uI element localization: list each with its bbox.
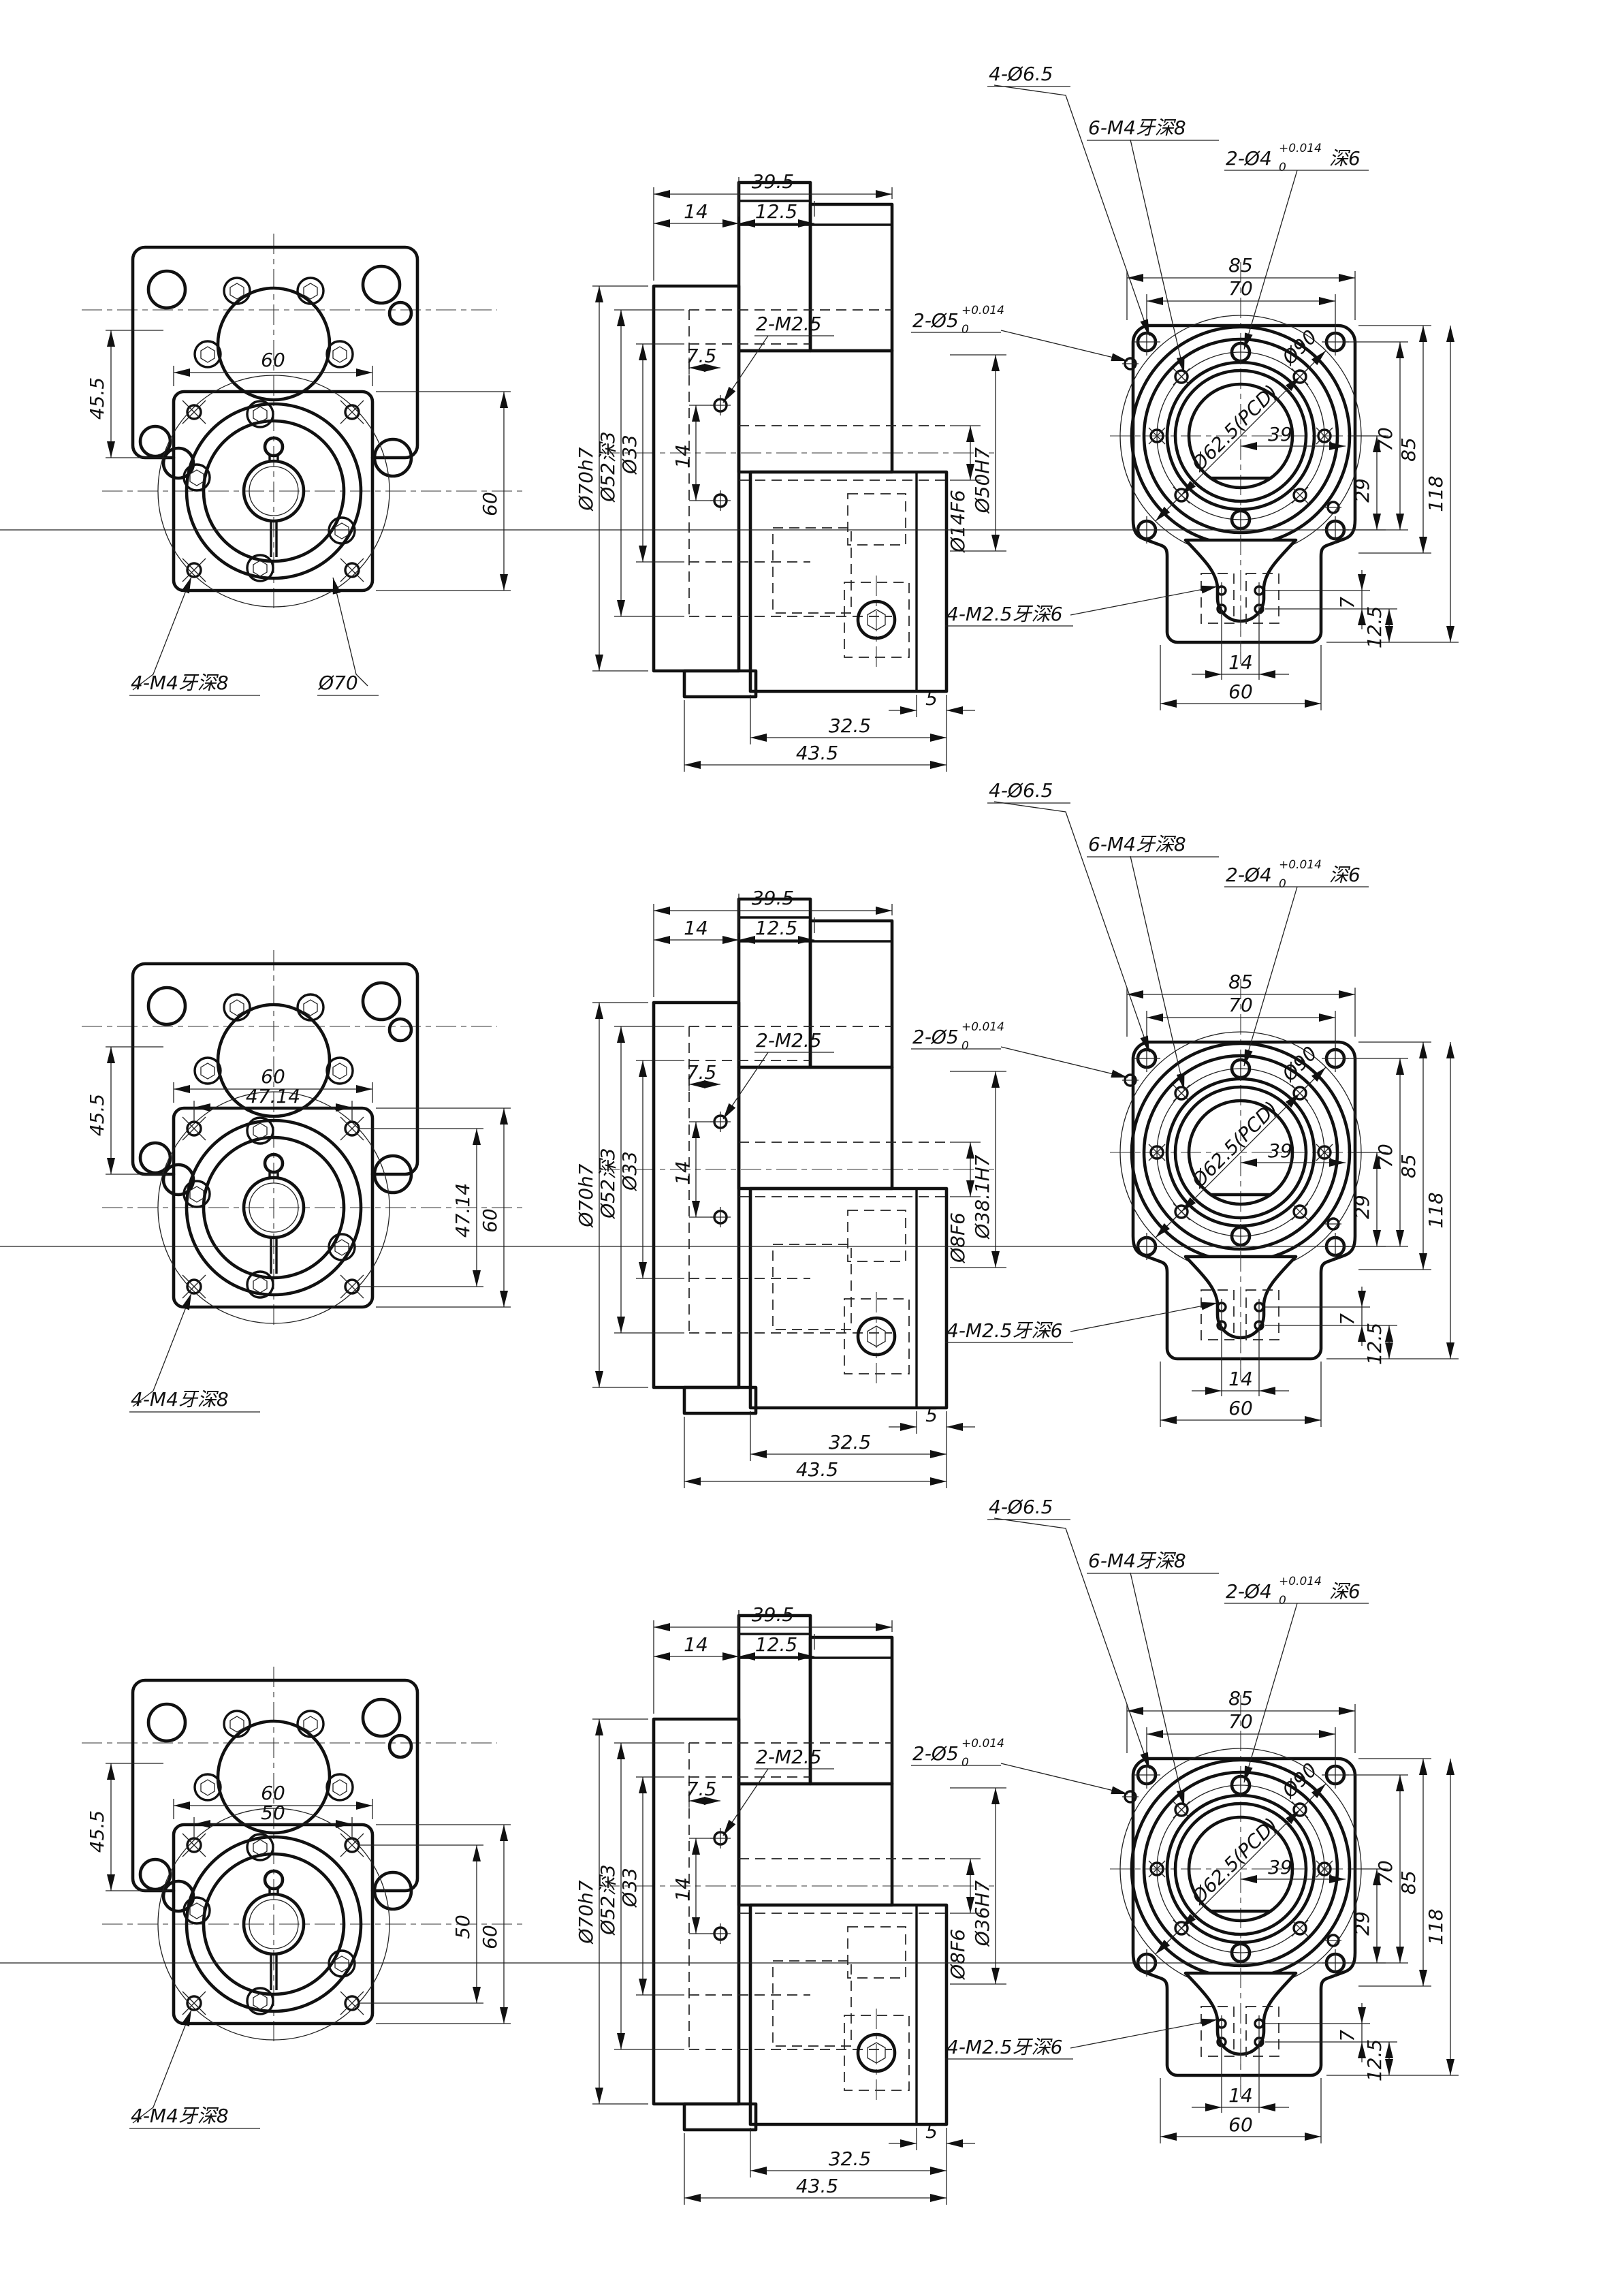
leader-label: 4-Ø6.5 — [989, 63, 1053, 85]
dim-label: Ø52深3 — [597, 1864, 619, 1935]
dim-label: 7 — [1336, 1313, 1358, 1325]
tolerance-lower: 0 — [961, 323, 969, 336]
dim-label: 12.5 — [1363, 606, 1386, 648]
dim-label: 12.5 — [755, 917, 797, 939]
tolerance-upper: +0.014 — [1279, 1575, 1322, 1588]
drawing-row: 60 47.14 45.5 47.14 60 4-M4牙深8 — [0, 774, 1622, 1496]
dim-label: 12.5 — [1363, 1323, 1386, 1365]
tolerance-upper: +0.014 — [961, 1020, 1004, 1034]
dim-label: 29 — [1351, 1911, 1373, 1936]
dim-label: 14 — [1228, 651, 1253, 674]
dim-label: 118 — [1425, 1908, 1447, 1945]
dim-label: 14 — [1228, 2084, 1253, 2107]
dim-label: 7.5 — [686, 1061, 717, 1084]
dim-label: 60 — [261, 349, 285, 371]
dim-label: 32.5 — [829, 714, 871, 737]
tolerance-lower: 0 — [961, 1039, 969, 1053]
front-view: 60 50 45.5 50 60 4-M4牙深8 — [82, 1667, 524, 2128]
dim-label: 7.5 — [686, 1778, 717, 1800]
dim-label: 7 — [1336, 597, 1358, 609]
dim-label: 70 — [1374, 427, 1397, 452]
front-view-dimensions: 60 50 45.5 50 60 4-M4牙深8 — [86, 1763, 511, 2128]
dim-label: 29 — [1351, 478, 1373, 503]
dim-label: 14 — [1228, 1368, 1253, 1390]
dim-label: 39 — [1268, 1856, 1292, 1878]
dim-label: Ø50H7 — [971, 447, 993, 514]
dim-label: Ø90 — [1277, 326, 1322, 370]
leader-suffix: 深6 — [1329, 864, 1361, 886]
tolerance-lower: 0 — [1279, 877, 1286, 891]
leader-label: 4-M4牙深8 — [131, 2105, 229, 2127]
drawing-row: 60 45.5 60 4-M4牙深8 Ø70 — [0, 58, 1622, 780]
dim-label: 85 — [1397, 1154, 1420, 1178]
leader-label: 4-M2.5牙深6 — [947, 2036, 1062, 2058]
leader-label: 2-Ø4 — [1226, 147, 1272, 170]
leader-label: 4-M4牙深8 — [131, 672, 229, 694]
side-view-geometry — [599, 183, 994, 697]
dim-label: 118 — [1425, 475, 1447, 512]
dim-label: 70 — [1228, 277, 1253, 300]
back-view: 85 70 4-Ø6.5 6-M4牙深8 2-Ø4 +0.014 0 深6 2-… — [0, 63, 1459, 710]
leader-label: 2-M2.5 — [756, 1746, 822, 1768]
dim-label: 43.5 — [796, 1458, 838, 1481]
dim-label: 39 — [1268, 1139, 1292, 1162]
leader-label: 2-Ø4 — [1226, 864, 1272, 886]
dim-label: 118 — [1425, 1192, 1447, 1228]
dim-label: 14 — [671, 444, 694, 469]
tolerance-upper: +0.014 — [1279, 142, 1322, 155]
dim-label: 5 — [925, 2120, 938, 2143]
tolerance-upper: +0.014 — [961, 304, 1004, 317]
dim-label: Ø90 — [1277, 1042, 1322, 1086]
leader-label: 2-Ø5 — [912, 309, 959, 332]
back-view: 85 70 4-Ø6.5 6-M4牙深8 2-Ø4 +0.014 0 深6 2-… — [0, 1496, 1459, 2143]
dim-label: Ø33 — [618, 435, 641, 475]
dim-label: 45.5 — [86, 1094, 108, 1136]
dim-label: 39.5 — [752, 170, 794, 193]
dim-label: 50 — [451, 1915, 474, 1939]
dim-label: 45.5 — [86, 377, 108, 420]
dim-label: 85 — [1397, 1870, 1420, 1895]
dim-label: 5 — [925, 1404, 938, 1426]
dim-label: 85 — [1228, 1687, 1253, 1710]
leader-label: 4-M2.5牙深6 — [947, 1319, 1062, 1342]
dim-label: 14 — [684, 1633, 708, 1656]
leader-label: 4-Ø6.5 — [989, 779, 1053, 802]
leader-label: 2-Ø4 — [1226, 1580, 1272, 1603]
dim-label: Ø14F6 — [947, 490, 969, 553]
dim-label: 43.5 — [796, 2175, 838, 2197]
leader-label: 6-M4牙深8 — [1088, 1550, 1186, 1572]
dim-label: 12.5 — [755, 1633, 797, 1656]
side-view-geometry — [599, 1616, 994, 2130]
dim-label: Ø52深3 — [597, 431, 619, 502]
dim-label: 60 — [479, 1925, 501, 1949]
dim-label: 32.5 — [829, 2148, 871, 2170]
dim-label: 39.5 — [752, 887, 794, 909]
dim-label: 7.5 — [686, 345, 717, 367]
dim-label: Ø36H7 — [971, 1881, 993, 1947]
tolerance-lower: 0 — [1279, 161, 1286, 174]
dim-label: Ø33 — [618, 1868, 641, 1908]
leader-label: Ø70 — [318, 672, 358, 694]
front-view-dimensions: 60 47.14 45.5 47.14 60 4-M4牙深8 — [86, 1047, 511, 1412]
dim-label: 60 — [479, 492, 501, 516]
dim-label: Ø90 — [1277, 1759, 1322, 1803]
leader-label: 6-M4牙深8 — [1088, 833, 1186, 855]
dim-label: 85 — [1228, 971, 1253, 993]
back-view: 85 70 4-Ø6.5 6-M4牙深8 2-Ø4 +0.014 0 深6 2-… — [0, 779, 1459, 1427]
dim-label: 45.5 — [86, 1810, 108, 1853]
tolerance-upper: +0.014 — [1279, 858, 1322, 872]
dim-label: 70 — [1374, 1860, 1397, 1885]
dim-label: Ø8F6 — [947, 1212, 969, 1263]
dim-label: 32.5 — [829, 1431, 871, 1453]
dim-label: Ø70h7 — [575, 447, 597, 511]
dim-label: 70 — [1228, 994, 1253, 1016]
leader-suffix: 深6 — [1329, 147, 1361, 170]
dim-label: 60 — [479, 1208, 501, 1233]
dim-label: 39 — [1268, 423, 1292, 445]
front-view-geometry — [82, 234, 524, 613]
tolerance-lower: 0 — [961, 1756, 969, 1770]
side-view: 39.5 14 12.5 Ø70h7 Ø52深3 Ø33 14 7.5 — [575, 887, 1006, 1488]
dim-label: 47.14 — [246, 1085, 300, 1107]
dim-label: 14 — [671, 1877, 694, 1902]
dim-label: 70 — [1374, 1144, 1397, 1168]
dim-label: Ø38.1H7 — [971, 1154, 993, 1239]
leader-label: 6-M4牙深8 — [1088, 116, 1186, 139]
side-view: 39.5 14 12.5 Ø70h7 Ø52深3 Ø33 14 7.5 — [575, 1603, 1006, 2205]
leader-suffix: 深6 — [1329, 1580, 1361, 1603]
leader-label: 4-M2.5牙深6 — [947, 603, 1062, 625]
dim-label: Ø8F6 — [947, 1929, 969, 1980]
leader-label: 2-Ø5 — [912, 1742, 959, 1765]
leader-label: 4-Ø6.5 — [989, 1496, 1053, 1518]
tolerance-upper: +0.014 — [961, 1737, 1004, 1750]
dim-label: 14 — [684, 917, 708, 939]
dim-label: 29 — [1351, 1195, 1373, 1219]
leader-label: 4-M4牙深8 — [131, 1388, 229, 1411]
dim-label: 60 — [1228, 680, 1253, 703]
dim-label: 50 — [261, 1802, 285, 1824]
front-view-dimensions: 60 45.5 60 4-M4牙深8 Ø70 — [86, 330, 511, 695]
dim-label: 43.5 — [796, 742, 838, 764]
drawing-sheet: 60 45.5 60 4-M4牙深8 Ø70 — [0, 0, 1622, 2296]
front-view: 60 47.14 45.5 47.14 60 4-M4牙深8 — [82, 950, 524, 1412]
leader-label: 2-M2.5 — [756, 313, 822, 335]
front-view-geometry — [82, 950, 524, 1330]
dim-label: 5 — [925, 687, 938, 710]
dim-label: 39.5 — [752, 1603, 794, 1626]
dim-label: 12.5 — [1363, 2039, 1386, 2081]
dim-label: 14 — [671, 1161, 694, 1185]
dim-label: 60 — [1228, 1397, 1253, 1419]
dim-label: 12.5 — [755, 200, 797, 223]
dim-label: 47.14 — [451, 1183, 474, 1238]
side-view-geometry — [599, 899, 994, 1413]
dim-label: Ø70h7 — [575, 1880, 597, 1944]
dim-label: Ø52深3 — [597, 1148, 619, 1218]
dim-label: 7 — [1336, 2030, 1358, 2042]
dim-label: Ø33 — [618, 1151, 641, 1191]
dim-label: 60 — [1228, 2113, 1253, 2136]
drawing-row: 60 50 45.5 50 60 4-M4牙深8 — [0, 1491, 1622, 2213]
dim-label: Ø70h7 — [575, 1163, 597, 1227]
tolerance-lower: 0 — [1279, 1594, 1286, 1607]
front-view-geometry — [82, 1667, 524, 2046]
leader-label: 2-M2.5 — [756, 1029, 822, 1052]
side-view: 39.5 14 12.5 Ø70h7 Ø52深3 Ø33 14 7.5 — [575, 170, 1006, 772]
dim-label: 70 — [1228, 1710, 1253, 1733]
front-view: 60 45.5 60 4-M4牙深8 Ø70 — [82, 234, 524, 695]
dim-label: 14 — [684, 200, 708, 223]
dim-label: 85 — [1397, 437, 1420, 462]
leader-label: 2-Ø5 — [912, 1026, 959, 1048]
dim-label: 85 — [1228, 254, 1253, 277]
